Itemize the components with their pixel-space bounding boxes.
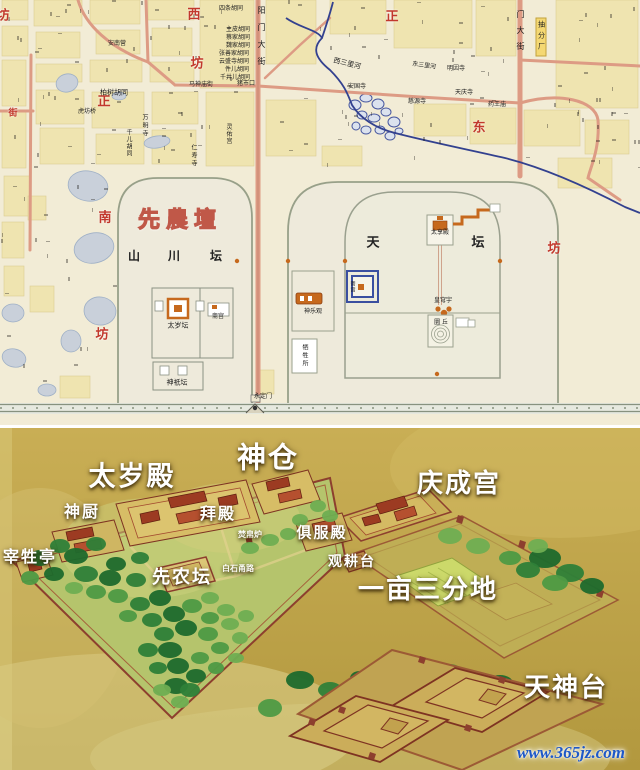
illustration-label: 观耕台 <box>328 554 376 568</box>
screenshot-stage: 先農壇坊西正坊正东南坊坊街山川坛天坛柏树胡同虎坊桥万明寺千儿胡同安南营四条胡同主… <box>0 0 640 770</box>
map-label: 主皮胡同 <box>226 27 250 33</box>
illustration-label: 俱服殿 <box>296 526 347 541</box>
map-label: 柏树胡同 <box>100 90 128 97</box>
map-label: 皇穹宇 <box>434 298 452 304</box>
historical-map-panel: 先農壇坊西正坊正东南坊坊街山川坛天坛柏树胡同虎坊桥万明寺千儿胡同安南营四条胡同主… <box>0 0 640 425</box>
illustration-label: 先农坛 <box>152 568 212 586</box>
map-label: 坊 <box>190 57 203 70</box>
map-label: 天庆寺 <box>455 90 473 96</box>
illustration-label: 太岁殿 <box>89 464 176 491</box>
map-label: 马神庙街 <box>189 82 213 88</box>
map-label: 猪市口 <box>237 81 255 87</box>
map-label: 西 <box>187 8 200 21</box>
map-label: 坊 <box>547 242 560 255</box>
map-label: 斋宫 <box>212 314 224 320</box>
map-label-layer: 先農壇坊西正坊正东南坊坊街山川坛天坛柏树胡同虎坊桥万明寺千儿胡同安南营四条胡同主… <box>0 0 640 425</box>
map-label: 太岁坛 <box>168 323 189 330</box>
map-label: 件儿胡同 <box>225 67 249 73</box>
map-label: 安国寺 <box>348 84 366 90</box>
illustration-label: 焚帛炉 <box>238 531 262 539</box>
map-label: 灵佑宫 <box>225 124 231 145</box>
illustration-label: 一亩三分地 <box>358 576 498 602</box>
illustration-label: 宰牲亭 <box>3 550 57 566</box>
map-label: 坛 <box>210 250 222 262</box>
map-label: 坊 <box>95 328 108 341</box>
illustration-label: 拜殿 <box>200 507 236 523</box>
watermark-url: www.365jz.com <box>517 743 625 763</box>
map-label: 川 <box>168 250 180 262</box>
map-label: 永定门 <box>254 394 272 400</box>
map-label: 神乐观 <box>304 309 322 315</box>
map-label: 东 <box>472 121 485 134</box>
illustration-label: 白石甬路 <box>222 565 254 573</box>
map-label: 万明寺 <box>141 114 147 138</box>
map-label: 东三里河 <box>412 61 437 70</box>
map-label: 南 <box>98 211 111 224</box>
illustration-label: 天神台 <box>524 674 608 700</box>
illustration-label: 神仓 <box>237 445 299 474</box>
map-label: 正 <box>385 10 398 23</box>
map-label: 仁寿寺 <box>190 144 196 168</box>
map-label: 虎坊桥 <box>78 109 96 115</box>
aerial-illustration-panel: 太岁殿神仓庆成宫神厨拜殿俱服殿焚帛炉宰牲亭先农坛白石甬路观耕台一亩三分地天神台w… <box>0 428 640 770</box>
map-label: 慈源寺 <box>408 99 426 105</box>
map-label: 坊 <box>0 9 10 22</box>
map-label: 天 <box>366 236 379 249</box>
map-label: 圜 丘 <box>434 320 448 326</box>
map-label: 张善家胡同 <box>219 51 249 57</box>
map-label: 明因寺 <box>447 66 465 72</box>
map-label: 街 <box>8 109 17 118</box>
map-label: 斋宫 <box>350 281 355 293</box>
map-label: 药王庙 <box>488 102 506 108</box>
map-label: 牺牲所 <box>301 344 307 368</box>
map-label: 云盛寺胡同 <box>219 59 249 65</box>
map-label: 门大街 <box>516 10 524 58</box>
map-label: 四条胡同 <box>219 6 243 12</box>
illustration-label: 庆成宫 <box>417 470 501 496</box>
map-label: 西三里河 <box>333 57 362 71</box>
map-label: 蔡家胡同 <box>226 35 250 41</box>
illustration-label: 神厨 <box>64 505 100 521</box>
map-label: 千儿胡同 <box>125 129 131 157</box>
map-label: 抽分厂 <box>536 18 547 57</box>
illustration-label-layer: 太岁殿神仓庆成宫神厨拜殿俱服殿焚帛炉宰牲亭先农坛白石甬路观耕台一亩三分地天神台w… <box>0 428 640 770</box>
map-label: 山 <box>128 250 140 262</box>
map-label: 太享殿 <box>431 230 449 236</box>
map-label: 神祇坛 <box>167 380 188 387</box>
map-label: 魏家胡同 <box>226 43 250 49</box>
map-title-xiannongtan: 先農壇 <box>138 209 222 231</box>
map-label: 坛 <box>471 236 484 249</box>
map-label: 安南营 <box>108 41 126 47</box>
map-label: 阳门大街 <box>257 6 265 74</box>
